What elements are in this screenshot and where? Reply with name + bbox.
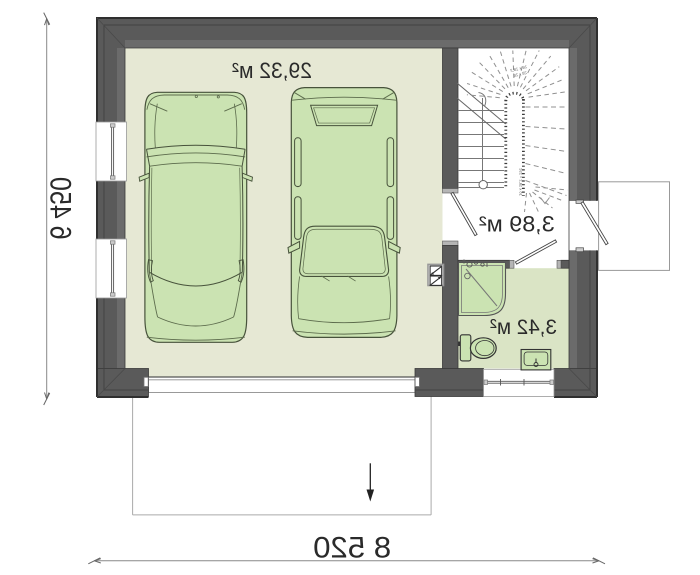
svg-text:16 x 18,2 = 292: 16 x 18,2 = 292: [519, 167, 524, 195]
svg-text:3,42 м²: 3,42 м²: [490, 316, 557, 339]
svg-text:3,89 м²: 3,89 м²: [479, 212, 555, 237]
svg-text:29,32 м²: 29,32 м²: [232, 58, 312, 83]
svg-text:8 520: 8 520: [313, 532, 391, 565]
svg-text:6 450: 6 450: [44, 177, 77, 240]
